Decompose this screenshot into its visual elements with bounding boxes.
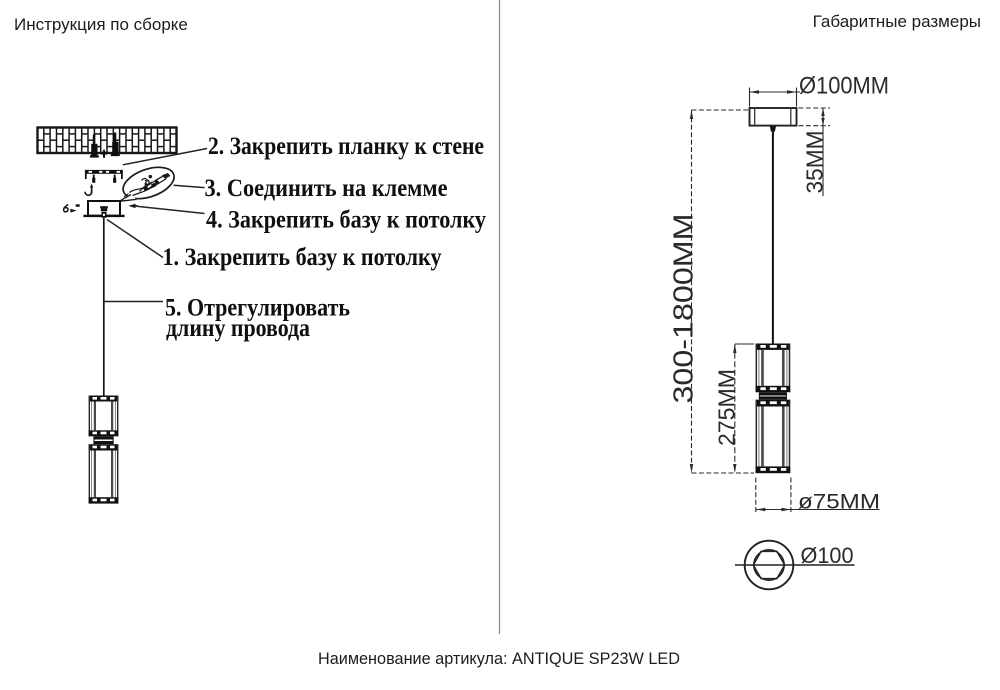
svg-text:300-1800MM: 300-1800MM (668, 214, 699, 404)
svg-text:Ø100MM: Ø100MM (799, 73, 889, 100)
svg-text:ø75MM: ø75MM (798, 491, 880, 514)
svg-text:3. Соединить на клемме: 3. Соединить на клемме (205, 175, 448, 202)
svg-text:275MM: 275MM (714, 369, 740, 446)
svg-text:Наименование артикула: ANTIQUE: Наименование артикула: ANTIQUE SP23W LED (318, 649, 680, 668)
svg-text:Ø100: Ø100 (801, 543, 854, 568)
svg-text:Габаритные размеры: Габаритные размеры (813, 12, 981, 31)
svg-text:длину провода: длину провода (166, 315, 310, 342)
svg-text:35MM: 35MM (802, 131, 828, 194)
svg-text:2. Закрепить планку к стене: 2. Закрепить планку к стене (208, 133, 484, 160)
svg-text:Инструкция по сборке: Инструкция по сборке (14, 15, 188, 34)
svg-text:1. Закрепить базу к потолку: 1. Закрепить базу к потолку (163, 244, 442, 271)
svg-text:4. Закрепить базу к потолку: 4. Закрепить базу к потолку (206, 207, 486, 234)
